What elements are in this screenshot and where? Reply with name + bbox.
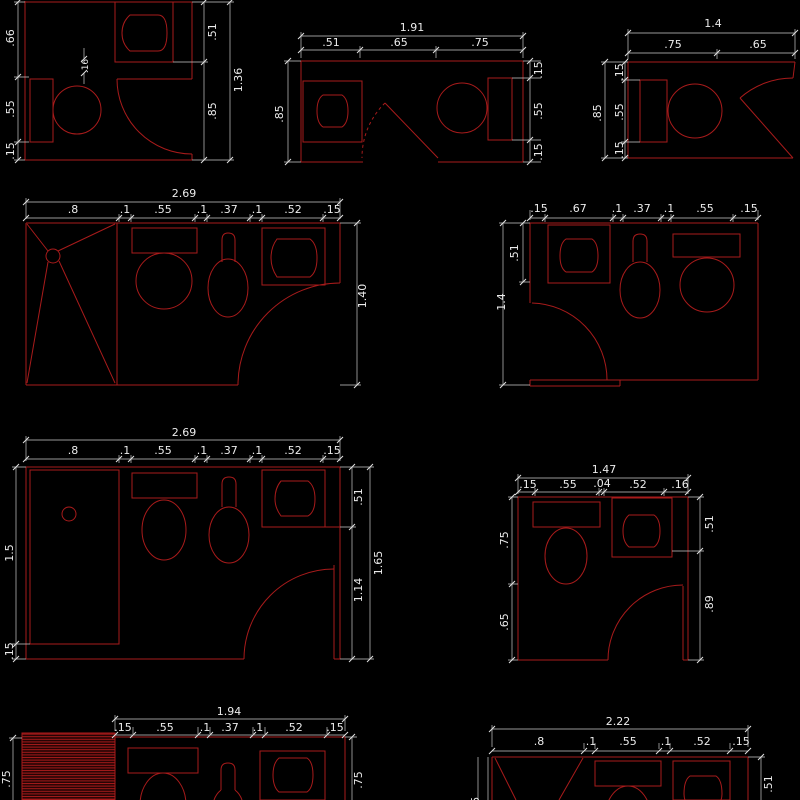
- dim-label: .51: [508, 244, 521, 262]
- dim-label: .1: [253, 721, 264, 734]
- dim-label: .1: [252, 444, 263, 457]
- dim-label: .1: [200, 721, 211, 734]
- dim-label: .15: [613, 63, 626, 81]
- dim-label: 1.14: [352, 578, 365, 603]
- dim-label: .15: [326, 721, 344, 734]
- dim-label: .75: [471, 36, 489, 49]
- dim-label: .1: [197, 203, 208, 216]
- dim-label: .55: [619, 735, 637, 748]
- dim-label: .37: [220, 444, 238, 457]
- dim-label: .52: [629, 478, 647, 491]
- dim-label: .52: [693, 735, 711, 748]
- dim-label: .52: [284, 444, 302, 457]
- dim-label: .1: [664, 202, 675, 215]
- dim-label-total: 2.22: [606, 715, 631, 728]
- dim-label: .15: [519, 478, 537, 491]
- dim-label: .8: [68, 444, 79, 457]
- dim-label: .55: [696, 202, 714, 215]
- dim-label: .1: [661, 735, 672, 748]
- shower-hatch: [22, 733, 115, 800]
- dim-label: .85: [273, 105, 286, 123]
- dim-label: .15: [114, 721, 132, 734]
- dim-label: 1.4: [495, 293, 508, 311]
- dim-label: .51: [762, 775, 775, 793]
- dim-label: .55: [532, 102, 545, 120]
- dim-label-note: .16: [81, 59, 91, 74]
- dim-label: .15: [323, 444, 341, 457]
- drawing-background: [0, 0, 800, 800]
- dim-label: .15: [532, 143, 545, 161]
- dim-label-total: 1.36: [232, 68, 245, 93]
- dim-label: .75: [0, 770, 13, 788]
- dim-label: .1: [120, 203, 131, 216]
- dim-label: .55: [156, 721, 174, 734]
- dim-label: .15: [613, 141, 626, 159]
- dim-label: 1.5: [3, 544, 16, 562]
- dim-label-total: 1.65: [372, 551, 385, 576]
- dim-label: .37: [221, 721, 239, 734]
- dim-label: .75: [352, 771, 365, 789]
- dim-label: .52: [284, 203, 302, 216]
- dim-label: .15: [4, 142, 17, 160]
- dim-label: .85: [591, 104, 604, 122]
- dim-label: .1: [612, 202, 623, 215]
- dim-label: .15: [530, 202, 548, 215]
- dim-label: .65: [498, 613, 511, 631]
- dim-label: .1: [197, 444, 208, 457]
- dim-label: .55: [154, 203, 172, 216]
- dim-label: .51: [206, 23, 219, 41]
- dim-label: .51: [322, 36, 340, 49]
- dim-label-total: 1.91: [400, 21, 425, 34]
- dim-label: .16: [671, 478, 689, 491]
- dim-label: .37: [220, 203, 238, 216]
- cad-canvas: .66 .55 .15 .51 .85 1.36 .16 1.91 .51 .6…: [0, 0, 800, 800]
- dim-label: .15: [3, 642, 16, 660]
- dim-label-total: 2.69: [172, 426, 197, 439]
- dim-label: .04: [593, 477, 611, 490]
- dim-label: .8: [534, 735, 545, 748]
- dim-label-total: 1.47: [592, 463, 617, 476]
- dim-label: .55: [154, 444, 172, 457]
- dim-label: .15: [732, 735, 750, 748]
- dim-label: .75: [498, 531, 511, 549]
- dim-label-total: 1.94: [217, 705, 242, 718]
- dim-label: .37: [633, 202, 651, 215]
- dim-label: .1: [252, 203, 263, 216]
- dim-label: .51: [703, 515, 716, 533]
- dim-label: .15: [532, 61, 545, 79]
- dim-label: .51: [352, 488, 365, 506]
- dim-label: .1: [586, 735, 597, 748]
- dim-label: .75: [664, 38, 682, 51]
- dim-label: .65: [749, 38, 767, 51]
- dim-label-total: 2.69: [172, 187, 197, 200]
- dim-label: .67: [569, 202, 587, 215]
- dim-label: .55: [613, 103, 626, 121]
- dim-label: .89: [703, 595, 716, 613]
- dim-label: .15: [740, 202, 758, 215]
- dim-label: .1: [120, 444, 131, 457]
- dim-label: .85: [206, 102, 219, 120]
- dim-label: .55: [559, 478, 577, 491]
- dim-label: .66: [4, 29, 17, 47]
- dim-label: .52: [285, 721, 303, 734]
- dim-label: 1.40: [356, 284, 369, 309]
- dim-label: .55: [4, 100, 17, 118]
- dim-label: .65: [390, 36, 408, 49]
- dim-label: .15: [323, 203, 341, 216]
- dim-label-total: 1.4: [704, 17, 722, 30]
- dim-label: .8: [68, 203, 79, 216]
